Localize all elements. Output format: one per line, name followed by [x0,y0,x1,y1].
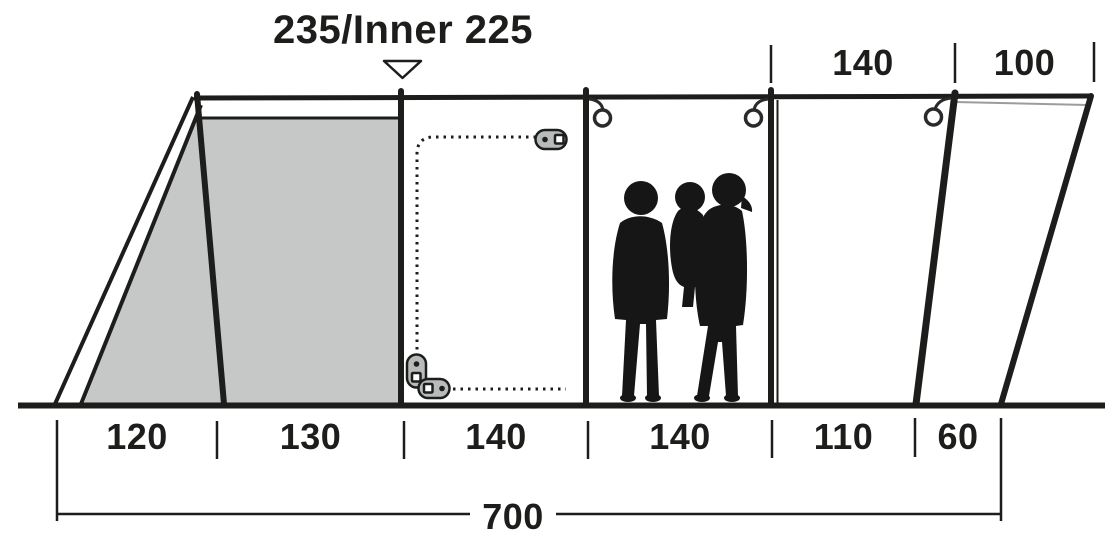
ring-hook-icon-1 [595,110,611,126]
tent-dimensions-diagram: 235/Inner 225 140 100 120 130 140 140 11… [0,0,1115,539]
child-body [670,207,706,287]
rear-wall-line [1001,96,1091,404]
bottom-dimension-label-120: 120 [57,419,217,455]
adult1-head [624,181,658,215]
inner-tent-area [84,118,401,403]
hook-curve-2 [754,99,768,110]
hook-curve-1 [589,99,603,110]
total-dimension-label: 700 [433,499,593,535]
top-dimension-label-100: 100 [955,45,1094,81]
height-dimension-label: 235/Inner 225 [250,10,556,50]
hook-curve-3 [935,98,951,109]
child-leg [682,287,695,307]
ring-hook-icon-2 [746,110,762,126]
adult1-body [612,216,669,396]
triangle-down-marker-icon [384,61,421,78]
dotted-zipper-line [417,137,566,389]
pole-rear [916,93,955,404]
bottom-dimension-label-140a: 140 [404,419,588,455]
adult2-hair [741,196,752,212]
zipper-pull-icon-top [536,130,567,149]
bottom-dimension-label-110: 110 [772,419,915,455]
family-silhouette [612,173,752,402]
bottom-dimension-label-60: 60 [915,419,1001,455]
bottom-dimension-label-140b: 140 [588,419,772,455]
door-seam-path [417,137,536,352]
ring-hook-icon-3 [926,109,942,125]
adult2-head [712,173,746,207]
zipper-pull-icon-bottom-horizontal [419,379,450,398]
top-dimension-label-140: 140 [771,45,955,81]
rear-panel-inner-line [955,102,1088,105]
bottom-dimension-label-130: 130 [217,419,404,455]
